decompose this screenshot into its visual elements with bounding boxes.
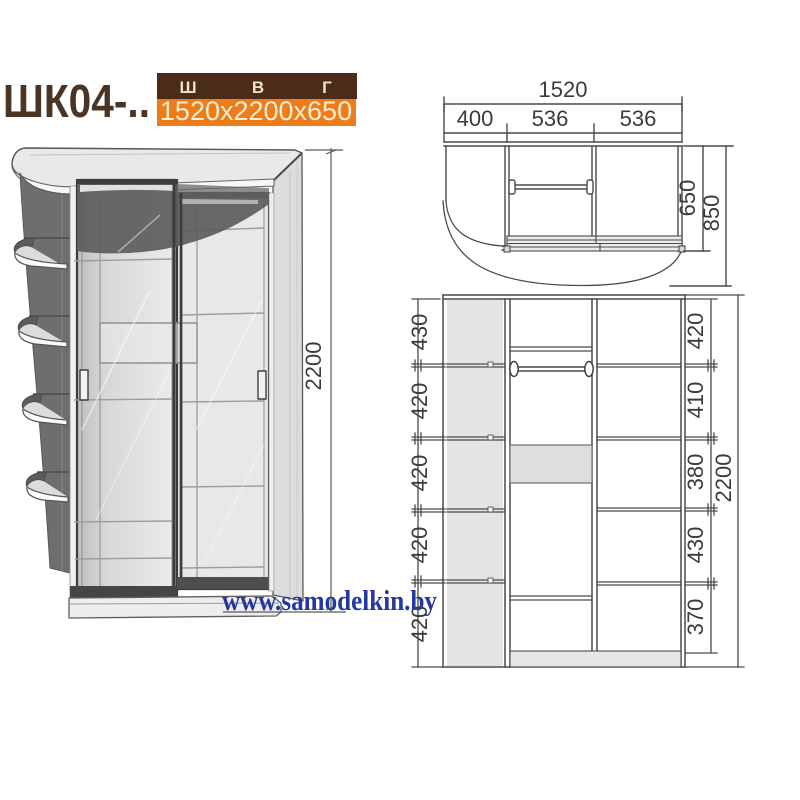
svg-text:Г: Г [322, 78, 332, 97]
svg-text:536: 536 [532, 106, 569, 131]
svg-text:420: 420 [407, 527, 432, 564]
svg-text:В: В [252, 78, 264, 97]
svg-text:420: 420 [407, 383, 432, 420]
svg-text:www.samodelkin.by: www.samodelkin.by [222, 586, 437, 617]
svg-text:650: 650 [675, 180, 700, 217]
svg-text:ШК04-..: ШК04-.. [3, 75, 150, 127]
svg-text:430: 430 [407, 314, 432, 351]
svg-text:430: 430 [683, 527, 708, 564]
svg-text:2200: 2200 [301, 342, 326, 391]
svg-text:410: 410 [683, 382, 708, 419]
svg-text:1520: 1520 [539, 77, 588, 102]
svg-text:370: 370 [683, 599, 708, 636]
svg-text:Ш: Ш [179, 78, 196, 97]
svg-text:400: 400 [457, 106, 494, 131]
svg-text:2200: 2200 [711, 454, 736, 503]
svg-text:380: 380 [683, 454, 708, 491]
svg-text:850: 850 [699, 195, 724, 232]
svg-text:1520x2200x650: 1520x2200x650 [160, 96, 352, 126]
svg-text:420: 420 [407, 455, 432, 492]
svg-text:420: 420 [683, 313, 708, 350]
svg-text:536: 536 [620, 106, 657, 131]
